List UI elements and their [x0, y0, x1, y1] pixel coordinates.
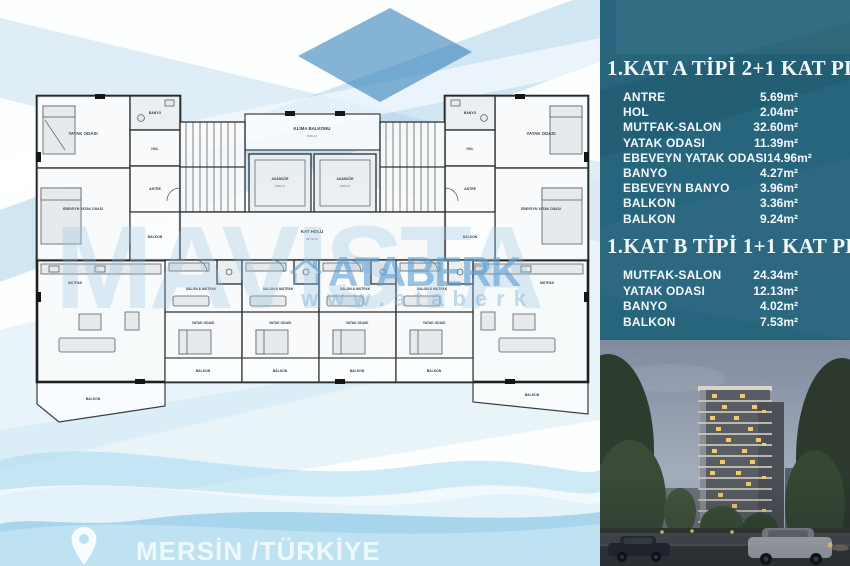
svg-text:BALKON: BALKON: [148, 235, 163, 239]
svg-text:YATAK ODASI: YATAK ODASI: [269, 321, 292, 325]
svg-text:YATAK ODASI: YATAK ODASI: [192, 321, 215, 325]
room-label: EBEVEYN YATAK ODASI: [623, 151, 767, 165]
svg-text:KLİMA BALKONU: KLİMA BALKONU: [294, 126, 331, 131]
info-panel: 1.KAT A TİPİ 2+1 KAT PLANI ANTRE 5.69m² …: [600, 0, 850, 566]
room-area: 2.04m²: [760, 105, 798, 119]
section-a-type: 1.KAT A TİPİ 2+1 KAT PLANI ANTRE 5.69m² …: [600, 56, 850, 227]
room-label: BANYO: [623, 166, 667, 180]
room-area: 24.34m²: [753, 268, 798, 282]
room-label: ANTRE: [623, 90, 665, 104]
svg-text:EBEVEYN YATAK ODASI: EBEVEYN YATAK ODASI: [521, 207, 561, 211]
svg-text:ANTRE: ANTRE: [149, 187, 161, 191]
room-label: EBEVEYN BANYO: [623, 181, 730, 195]
svg-text:KAT HOLÜ: KAT HOLÜ: [301, 229, 323, 234]
room-area: 4.02m²: [760, 299, 798, 313]
room-area: 11.39m²: [754, 136, 798, 150]
svg-text:SALON & MUTFAK: SALON & MUTFAK: [186, 287, 217, 291]
svg-text:BALKON: BALKON: [273, 369, 288, 373]
room-label: HOL: [623, 105, 649, 119]
room-area: 12.13m²: [753, 284, 798, 298]
watermark-url: www.ataberk: [268, 286, 568, 312]
svg-text:5.06 m²: 5.06 m²: [275, 184, 285, 188]
spec-row: BANYO 4.27m²: [600, 166, 850, 181]
spec-row: ANTRE 5.69m²: [600, 90, 850, 105]
svg-text:ANTRE: ANTRE: [464, 187, 476, 191]
spec-row: EBEVEYN YATAK ODASI 14.96m²: [600, 151, 850, 166]
spec-row: BALKON 9.24m²: [600, 212, 850, 227]
svg-text:YATAK ODASI: YATAK ODASI: [68, 131, 97, 136]
svg-text:BANYO: BANYO: [464, 111, 477, 115]
svg-text:YATAK ODASI: YATAK ODASI: [423, 321, 446, 325]
location-text: MERSİN /TÜRKİYE: [136, 536, 381, 566]
elevator-left: [249, 154, 311, 212]
svg-text:5.06 m²: 5.06 m²: [307, 134, 317, 138]
house-icon: [288, 255, 324, 289]
spec-row: BALKON 7.53m²: [600, 315, 850, 331]
spec-row: YATAK ODASI 12.13m²: [600, 284, 850, 300]
room-area: 32.60m²: [753, 120, 798, 134]
corner-balconies: BALKON BALKON: [37, 382, 588, 422]
svg-text:EBEVEYN YATAK ODASI: EBEVEYN YATAK ODASI: [63, 207, 103, 211]
svg-text:MUTFAK: MUTFAK: [68, 281, 83, 285]
room-area: 9.24m²: [760, 212, 798, 226]
room-label: MUTFAK-SALON: [623, 120, 721, 134]
svg-text:ASANSÖR: ASANSÖR: [337, 176, 355, 181]
room-label: YATAK ODASI: [623, 136, 705, 150]
spec-row: MUTFAK-SALON 32.60m²: [600, 120, 850, 135]
room-area: 7.53m²: [760, 315, 798, 329]
section-b-type: 1.KAT B TİPİ 1+1 KAT PLANI MUTFAK-SALON …: [600, 234, 850, 330]
room-label: MUTFAK-SALON: [623, 268, 721, 282]
room-area: 5.69m²: [760, 90, 798, 104]
svg-text:5.06 m²: 5.06 m²: [340, 184, 350, 188]
svg-text:BANYO: BANYO: [149, 111, 162, 115]
svg-text:BALKON: BALKON: [525, 393, 540, 397]
building-photo: [600, 340, 850, 566]
apartment-a-right: YATAK ODASI BANYO HOL EBEVEYN YATAK ODAS…: [445, 96, 588, 260]
room-label: YATAK ODASI: [623, 284, 705, 298]
room-area: 4.27m²: [760, 166, 798, 180]
svg-text:32.70 m²: 32.70 m²: [306, 237, 318, 241]
svg-text:HOL: HOL: [151, 147, 158, 151]
svg-text:MUTFAK: MUTFAK: [540, 281, 555, 285]
section-b-title: 1.KAT B TİPİ 1+1 KAT PLANI: [600, 234, 850, 259]
svg-text:YATAK ODASI: YATAK ODASI: [526, 131, 555, 136]
spec-row: YATAK ODASI 11.39m²: [600, 136, 850, 151]
section-a-title: 1.KAT A TİPİ 2+1 KAT PLANI: [600, 56, 850, 81]
core: KLİMA BALKONU 5.06 m²: [180, 114, 445, 260]
room-label: BALKON: [623, 212, 676, 226]
section-a-rows: ANTRE 5.69m² HOL 2.04m² MUTFAK-SALON 32.…: [600, 90, 850, 227]
svg-text:YATAK ODASI: YATAK ODASI: [346, 321, 369, 325]
room-label: BALKON: [623, 196, 676, 210]
section-b-rows: MUTFAK-SALON 24.34m² YATAK ODASI 12.13m²…: [600, 268, 850, 330]
room-area: 3.36m²: [760, 196, 798, 210]
spec-row: EBEVEYN BANYO 3.96m²: [600, 181, 850, 196]
svg-text:HOL: HOL: [466, 147, 473, 151]
marketing-sheet: BALKON BALKON YATAK O: [0, 0, 850, 566]
location-caption: MERSİN /TÜRKİYE: [70, 526, 381, 566]
room-label: BANYO: [623, 299, 667, 313]
location-pin-icon: [70, 526, 98, 566]
svg-text:BALKON: BALKON: [86, 397, 101, 401]
svg-text:ASANSÖR: ASANSÖR: [272, 176, 290, 181]
room-label: BALKON: [623, 315, 676, 329]
floorplan-area: BALKON BALKON YATAK O: [0, 0, 600, 566]
spec-row: BANYO 4.02m²: [600, 299, 850, 315]
spec-row: MUTFAK-SALON 24.34m²: [600, 268, 850, 284]
elevator-right: [314, 154, 376, 212]
room-area: 14.96m²: [767, 151, 812, 165]
spec-row: HOL 2.04m²: [600, 105, 850, 120]
apartment-a-left: YATAK ODASI BANYO HOL EBEVEYN YATAK ODAS…: [37, 96, 180, 260]
svg-text:BALKON: BALKON: [463, 235, 478, 239]
room-area: 3.96m²: [760, 181, 798, 195]
svg-text:BALKON: BALKON: [350, 369, 365, 373]
svg-text:BALKON: BALKON: [196, 369, 211, 373]
svg-text:BALKON: BALKON: [427, 369, 442, 373]
spec-row: BALKON 3.36m²: [600, 196, 850, 211]
